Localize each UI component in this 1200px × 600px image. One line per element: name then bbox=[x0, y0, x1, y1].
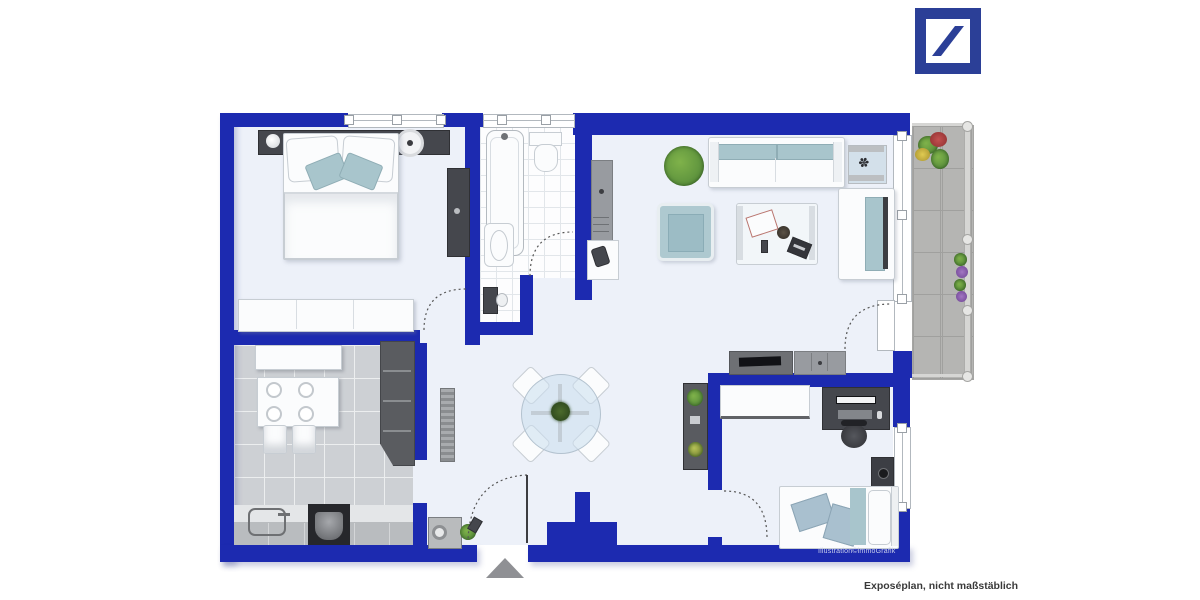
office-chair-back bbox=[841, 420, 867, 426]
wall-wc-nook-right bbox=[520, 275, 533, 325]
railing-post bbox=[962, 305, 973, 316]
nightstand-lamp bbox=[878, 468, 889, 479]
sofa bbox=[708, 137, 845, 188]
railing-post bbox=[962, 234, 973, 245]
keyboard bbox=[838, 410, 872, 419]
bathroom-sink bbox=[484, 223, 514, 267]
mouse bbox=[877, 411, 882, 419]
window-post bbox=[541, 115, 551, 125]
kitchen-tall-cabinet bbox=[380, 341, 415, 466]
window-post bbox=[392, 115, 402, 125]
cabinet-knob bbox=[818, 361, 822, 365]
balcony-planter-purple bbox=[956, 266, 968, 278]
window-post bbox=[897, 294, 907, 304]
balcony-railing-top bbox=[912, 123, 969, 126]
office-chair bbox=[841, 424, 867, 448]
plan-caption: Exposéplan, nicht maßstäblich bbox=[864, 580, 1018, 592]
wall-office-left-stub bbox=[708, 537, 722, 545]
cabinet-shelf-line bbox=[383, 400, 411, 402]
tv-lowboard bbox=[729, 351, 793, 375]
sideboard-seam bbox=[296, 300, 297, 329]
dining-table-plant bbox=[551, 402, 570, 421]
dresser-knob bbox=[599, 189, 604, 194]
sofa-seat-seam bbox=[775, 158, 776, 182]
deutsche-bank-logo bbox=[915, 8, 981, 74]
kitchen-table bbox=[257, 377, 339, 427]
wall-kitchen-right bbox=[413, 343, 427, 460]
window-post bbox=[897, 131, 907, 141]
office-nightstand bbox=[871, 457, 894, 489]
balcony-flowers-yellow bbox=[915, 148, 930, 161]
second-sofa bbox=[838, 188, 895, 280]
second-sofa-shadow bbox=[883, 197, 888, 269]
washer-door bbox=[432, 525, 447, 540]
wardrobe-knob bbox=[454, 208, 460, 214]
armchair-seat bbox=[668, 214, 704, 252]
wall-top-pier bbox=[442, 113, 483, 127]
sofa-back-cushion bbox=[777, 144, 836, 160]
armchair bbox=[657, 203, 714, 261]
kitchen-bench bbox=[255, 345, 342, 370]
bathtub-faucet bbox=[501, 133, 508, 140]
table-seat bbox=[298, 382, 314, 398]
hall-tall-cabinet bbox=[440, 388, 455, 462]
balcony-flowers-green bbox=[931, 149, 949, 169]
wall-top-bedroom bbox=[220, 113, 348, 127]
window-post bbox=[897, 210, 907, 220]
sofa-back-cushion bbox=[718, 144, 777, 160]
sofa-armrest bbox=[710, 142, 719, 182]
table-plant bbox=[777, 226, 790, 239]
single-bed-blanket bbox=[850, 488, 866, 545]
balcony-flowers-red bbox=[930, 132, 947, 147]
wall-shaft-neck bbox=[575, 492, 590, 522]
tv bbox=[739, 356, 781, 366]
tablet-screen-line bbox=[793, 244, 805, 251]
dining-set bbox=[515, 369, 605, 459]
remote bbox=[761, 240, 768, 253]
window-frame-line bbox=[902, 428, 903, 508]
bedside-lamp bbox=[266, 134, 280, 148]
side-table-flower-icon: ✽ bbox=[855, 153, 872, 172]
floorplan-page: ✽ bbox=[0, 0, 1200, 600]
wall-top-living-thick bbox=[573, 113, 893, 135]
monitor bbox=[836, 396, 876, 404]
balcony-railing bbox=[964, 125, 971, 379]
entrance-arrow-icon bbox=[486, 558, 524, 578]
single-bed-end-pillow bbox=[868, 490, 891, 545]
window-post bbox=[436, 115, 446, 125]
sink-basin bbox=[490, 230, 508, 261]
sofa-armrest bbox=[833, 142, 842, 182]
counter-seam bbox=[354, 523, 355, 545]
balcony-door-leaf bbox=[877, 300, 895, 351]
wall-right-office-upper bbox=[893, 378, 910, 427]
balcony-planter-purple bbox=[956, 291, 967, 302]
hall-shelf bbox=[683, 383, 708, 470]
bed-blanket bbox=[284, 192, 398, 259]
hall-dresser bbox=[591, 160, 613, 242]
toilet-bowl bbox=[534, 144, 558, 172]
kitchen-stove bbox=[308, 504, 350, 545]
counter-seam bbox=[389, 523, 390, 545]
dresser-drawer-line bbox=[593, 217, 609, 218]
washing-machine bbox=[428, 517, 462, 549]
side-table: ✽ bbox=[848, 145, 887, 184]
single-bed-headboard bbox=[891, 487, 898, 546]
office-desk bbox=[720, 385, 810, 419]
railing-post bbox=[962, 121, 973, 132]
single-bed bbox=[779, 486, 899, 549]
second-sofa-cushion bbox=[865, 197, 885, 271]
illustration-credit: Illustration©immoGrafik bbox=[818, 548, 895, 555]
wc-nook-bowl bbox=[496, 293, 508, 307]
coffee-table-rail bbox=[809, 206, 815, 260]
bedroom-sideboard bbox=[238, 299, 414, 332]
wall-right-mid bbox=[893, 351, 912, 378]
side-table-edge bbox=[849, 175, 884, 181]
shelf-plant bbox=[688, 442, 703, 457]
counter-seam bbox=[304, 523, 305, 545]
side-table-edge bbox=[849, 146, 884, 152]
shelf-item bbox=[690, 416, 700, 424]
sideboard-seam bbox=[353, 300, 354, 329]
db-slash-icon bbox=[926, 19, 970, 63]
dresser-drawer-line bbox=[593, 224, 609, 225]
balcony-railing-bottom bbox=[912, 374, 969, 377]
dresser-drawer-line bbox=[593, 231, 609, 232]
wall-kitchen-right-stub bbox=[413, 503, 427, 545]
wall-shaft-base bbox=[547, 522, 617, 545]
window-post bbox=[897, 423, 907, 433]
cabinet-shelf-line bbox=[383, 430, 411, 432]
balcony-planter bbox=[954, 253, 967, 266]
kitchen-chair bbox=[263, 425, 287, 454]
cabinet-shelf-line bbox=[383, 370, 411, 372]
shelf-plant bbox=[687, 389, 703, 406]
balcony-planter bbox=[954, 279, 966, 291]
railing-post bbox=[962, 371, 973, 382]
kitchen-chair bbox=[292, 425, 316, 454]
sink-faucet bbox=[278, 513, 290, 516]
wall-wc-nook-bottom bbox=[465, 322, 533, 335]
window-post bbox=[344, 115, 354, 125]
window-post bbox=[497, 115, 507, 125]
living-plant bbox=[664, 146, 704, 186]
cabinet-seam bbox=[811, 353, 812, 371]
table-seat bbox=[266, 406, 282, 422]
bedside-clock-center bbox=[407, 140, 413, 146]
coffee-table bbox=[736, 203, 818, 265]
coffee-table-rail bbox=[737, 206, 743, 260]
stove-oven bbox=[315, 512, 343, 540]
living-cabinet bbox=[794, 351, 846, 375]
cabinet-seam bbox=[827, 353, 828, 371]
kitchen-counter bbox=[234, 505, 413, 545]
table-seat bbox=[298, 406, 314, 422]
table-seat bbox=[266, 382, 282, 398]
magazine bbox=[745, 209, 778, 238]
